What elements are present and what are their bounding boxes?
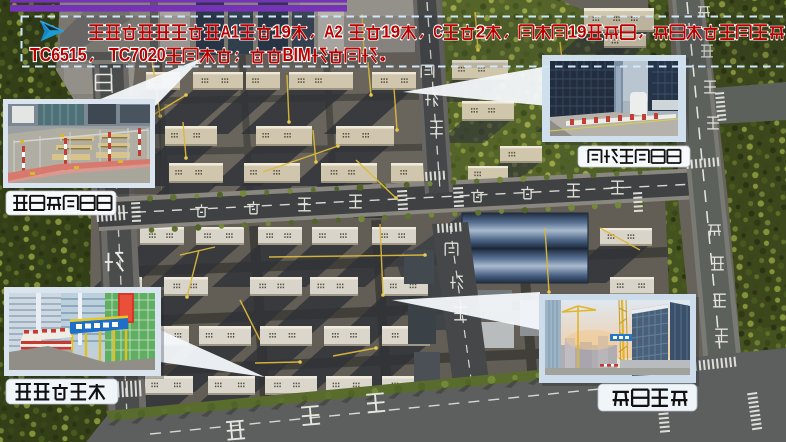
svg-text:C: C: [433, 22, 442, 42]
svg-text:19: 19: [381, 22, 400, 42]
svg-text:A1: A1: [220, 22, 239, 42]
svg-text:19: 19: [568, 22, 587, 42]
svg-text:BIM: BIM: [283, 45, 311, 65]
svg-text:TC7020: TC7020: [109, 45, 166, 65]
svg-text:2: 2: [476, 22, 485, 42]
svg-text:19: 19: [272, 22, 291, 42]
svg-text:TC6515: TC6515: [30, 45, 87, 65]
svg-text:A2: A2: [324, 22, 343, 42]
